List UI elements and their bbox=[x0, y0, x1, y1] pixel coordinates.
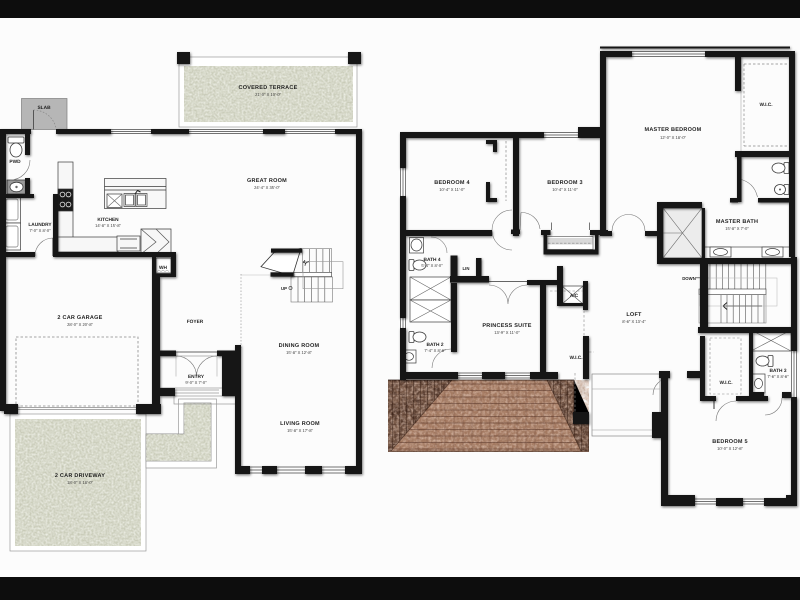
svg-text:W.I.C.: W.I.C. bbox=[719, 380, 732, 386]
svg-text:7'-4" X 8'-6": 7'-4" X 8'-6" bbox=[424, 348, 446, 353]
svg-text:WH: WH bbox=[159, 265, 168, 271]
svg-text:FOYER: FOYER bbox=[187, 319, 204, 325]
svg-text:10'-0" X 12'-6": 10'-0" X 12'-6" bbox=[717, 446, 743, 451]
svg-text:DINING ROOM: DINING ROOM bbox=[279, 343, 320, 349]
svg-text:15'-8" X 12'-8": 15'-8" X 12'-8" bbox=[286, 350, 312, 355]
svg-text:15'-8" X 17'-8": 15'-8" X 17'-8" bbox=[287, 428, 313, 433]
svg-text:BEDROOM 4: BEDROOM 4 bbox=[434, 180, 470, 186]
svg-text:MASTER BATH: MASTER BATH bbox=[716, 219, 758, 225]
svg-text:PRINCESS SUITE: PRINCESS SUITE bbox=[482, 323, 531, 329]
svg-text:14'-8" X 15'-8": 14'-8" X 15'-8" bbox=[95, 223, 121, 228]
svg-text:LIN: LIN bbox=[463, 266, 470, 271]
svg-text:LOFT: LOFT bbox=[626, 312, 642, 318]
svg-text:2 CAR GARAGE: 2 CAR GARAGE bbox=[57, 315, 102, 321]
svg-text:24'-4" X 35'-0": 24'-4" X 35'-0" bbox=[254, 185, 280, 190]
svg-text:UP: UP bbox=[281, 286, 287, 291]
svg-text:GREAT ROOM: GREAT ROOM bbox=[247, 178, 287, 184]
svg-text:5'-4" X 8'-0": 5'-4" X 8'-0" bbox=[421, 263, 443, 268]
svg-text:BEDROOM 5: BEDROOM 5 bbox=[712, 439, 748, 445]
svg-text:BEDROOM 3: BEDROOM 3 bbox=[547, 180, 583, 186]
svg-text:12'-0" X 18'-0": 12'-0" X 18'-0" bbox=[660, 135, 686, 140]
svg-text:COVERED TERRACE: COVERED TERRACE bbox=[238, 85, 297, 91]
svg-text:7'-6" X 8'-6": 7'-6" X 8'-6" bbox=[767, 374, 789, 379]
svg-text:8'-6" X 13'-4": 8'-6" X 13'-4" bbox=[622, 319, 646, 324]
svg-text:18'-0" X 18'-0": 18'-0" X 18'-0" bbox=[67, 480, 93, 485]
svg-text:10'-4" X 11'-0": 10'-4" X 11'-0" bbox=[439, 187, 465, 192]
svg-text:SLAB: SLAB bbox=[37, 105, 51, 111]
svg-text:DOWN: DOWN bbox=[682, 276, 696, 281]
svg-text:9'-0" X 7'-0": 9'-0" X 7'-0" bbox=[185, 380, 207, 385]
svg-text:13'-9" X 11'-0": 13'-9" X 11'-0" bbox=[494, 330, 520, 335]
svg-text:28'-0" X 20'-8": 28'-0" X 20'-8" bbox=[67, 322, 93, 327]
svg-text:10'-4" X 11'-0": 10'-4" X 11'-0" bbox=[552, 187, 578, 192]
svg-text:MASTER BEDROOM: MASTER BEDROOM bbox=[645, 127, 702, 133]
svg-text:LIVING ROOM: LIVING ROOM bbox=[280, 421, 320, 427]
svg-text:W.I.C.: W.I.C. bbox=[759, 102, 772, 108]
svg-text:2 CAR DRIVEWAY: 2 CAR DRIVEWAY bbox=[55, 473, 105, 479]
svg-text:15'-8" X 7'-0": 15'-8" X 7'-0" bbox=[725, 226, 749, 231]
svg-text:21'-0" X 10'-0": 21'-0" X 10'-0" bbox=[255, 92, 281, 97]
svg-text:A/C: A/C bbox=[570, 293, 579, 299]
svg-text:PWD: PWD bbox=[9, 159, 21, 165]
svg-text:W.I.C.: W.I.C. bbox=[569, 355, 582, 361]
svg-text:7'-0" X 8'-0": 7'-0" X 8'-0" bbox=[29, 228, 51, 233]
